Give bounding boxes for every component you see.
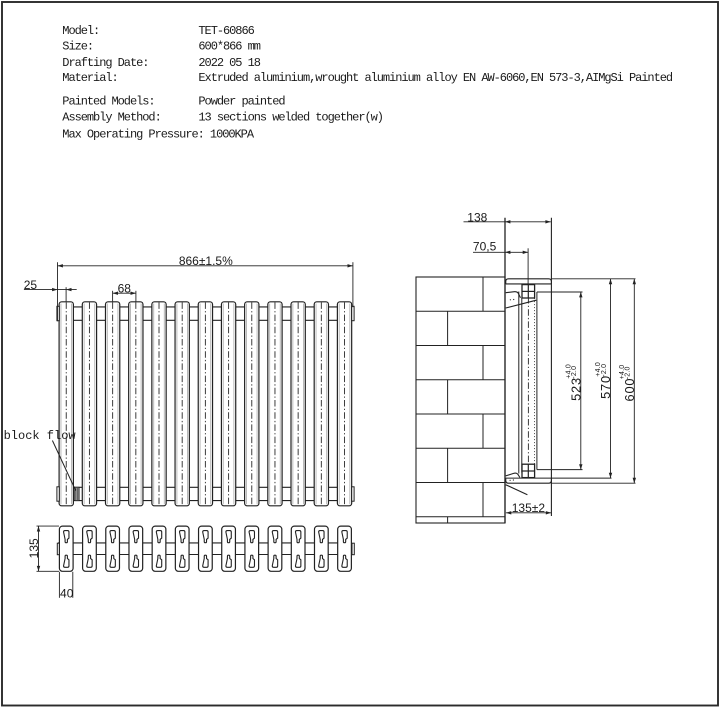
- svg-text:Drafting Date:: Drafting Date:: [62, 56, 148, 70]
- svg-text:68: 68: [118, 282, 132, 296]
- svg-text:570: 570: [598, 375, 613, 399]
- svg-text:135±2: 135±2: [512, 501, 546, 515]
- svg-text:block flow: block flow: [4, 429, 77, 443]
- svg-text:523: 523: [568, 377, 583, 401]
- svg-text:600*866 mm: 600*866 mm: [198, 40, 260, 54]
- svg-text:25: 25: [24, 278, 38, 292]
- svg-text:40: 40: [60, 587, 74, 601]
- svg-text:TET-60866: TET-60866: [198, 24, 254, 38]
- svg-text:Powder painted: Powder painted: [198, 95, 285, 109]
- svg-text:Painted Models:: Painted Models:: [62, 95, 154, 109]
- svg-text:Size:: Size:: [62, 40, 93, 54]
- svg-text:Extruded aluminium,wrought alu: Extruded aluminium,wrought aluminium all…: [198, 71, 672, 85]
- svg-text:866±1.5%: 866±1.5%: [179, 254, 233, 268]
- svg-text:Max Operating Pressure: 1000KP: Max Operating Pressure: 1000KPA: [62, 128, 255, 142]
- svg-text:138: 138: [467, 210, 487, 224]
- svg-text:Material:: Material:: [62, 71, 117, 85]
- svg-text:Model:: Model:: [62, 24, 99, 38]
- svg-text:-2.0: -2.0: [601, 364, 608, 377]
- svg-text:13 sections welded together(w): 13 sections welded together(w): [198, 111, 383, 125]
- svg-text:Assembly Method:: Assembly Method:: [62, 111, 160, 125]
- svg-text:135: 135: [27, 538, 41, 558]
- svg-text:-2.0: -2.0: [571, 366, 578, 379]
- svg-text:2022 05 18: 2022 05 18: [198, 56, 260, 70]
- svg-text:70,5: 70,5: [473, 239, 497, 253]
- svg-text:-2.0: -2.0: [625, 366, 632, 379]
- svg-text:600: 600: [622, 378, 637, 402]
